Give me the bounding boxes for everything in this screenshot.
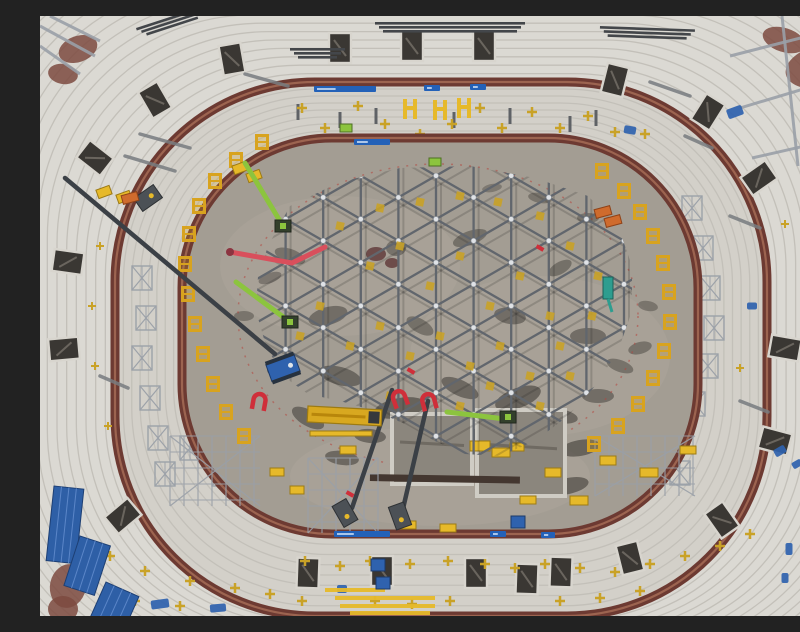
aerial-construction-photo [40, 16, 800, 616]
stadium-under-construction-svg [40, 16, 800, 616]
